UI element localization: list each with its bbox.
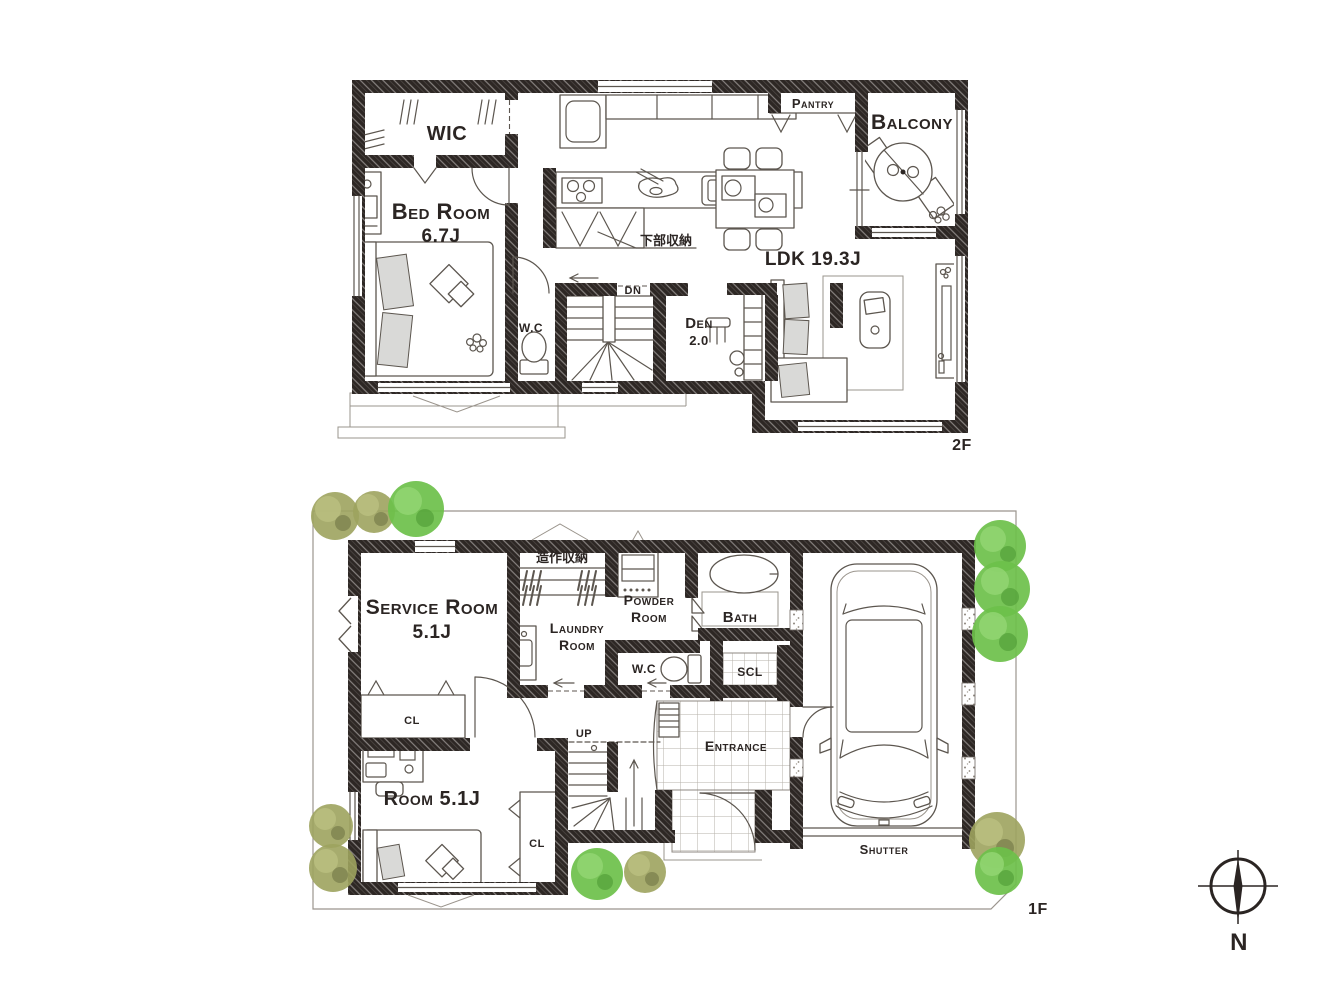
room-label-wic: WIC	[427, 123, 467, 145]
room-label-wc-1f: W.C	[632, 662, 656, 676]
shutter-label: Shutter	[860, 842, 909, 857]
double-bed	[362, 242, 493, 376]
room-size-service: 5.1J	[413, 622, 452, 643]
porch-tiles	[664, 790, 762, 860]
den-desk-shelf	[706, 294, 762, 380]
room-label-bath: Bath	[723, 609, 758, 626]
toilet-1f	[661, 655, 701, 683]
room-label-ldk: LDK 19.3J	[765, 249, 861, 270]
refrigerator	[560, 95, 606, 148]
tree-icon	[975, 847, 1023, 895]
compass-north-label: N	[1230, 929, 1248, 956]
room-label-entrance: Entrance	[705, 738, 767, 754]
room-label-powder-1: Powder	[624, 592, 675, 608]
tree-icon	[309, 804, 353, 848]
room-label-balcony: Balcony	[871, 111, 953, 134]
room-label-pantry: Pantry	[792, 96, 834, 111]
under-counter-storage	[556, 208, 644, 248]
kitchen-upper-cabinets	[606, 95, 796, 119]
stairs-label-up: UP	[576, 728, 592, 740]
doormat	[659, 703, 679, 737]
room-label-scl: SCL	[737, 665, 763, 679]
room-label-bedroom: Bed Room	[392, 199, 491, 224]
closet-label-service: CL	[404, 715, 420, 727]
floor-2f: WIC Bed Room 6.7J Pantry Balcony LDK 19.…	[338, 80, 972, 454]
room-label-wc-2f: W.C	[519, 321, 543, 335]
note-lower-storage: 下部収納	[640, 233, 692, 249]
floorplan-canvas: WIC Bed Room 6.7J Pantry Balcony LDK 19.…	[0, 0, 1333, 1000]
room-label-service: Service Room	[366, 596, 498, 619]
tree-icon	[388, 481, 444, 537]
floor-1f: Service Room 5.1J 造作収納 Laundry Room Powd…	[309, 481, 1048, 918]
laundry-hanger-rods	[520, 571, 605, 605]
coffee-table	[860, 292, 890, 348]
toilet-2f	[520, 332, 548, 374]
tree-icon	[311, 492, 359, 540]
tree-icon	[309, 844, 357, 892]
garage-shutter	[803, 828, 962, 836]
floor-label-1f: 1F	[1028, 901, 1048, 918]
room-size-bedroom: 6.7J	[422, 226, 461, 247]
compass-icon: N	[1198, 850, 1278, 956]
tree-icon	[624, 851, 666, 893]
tree-icon	[571, 848, 623, 900]
floor-label-2f: 2F	[952, 437, 972, 454]
note-builtin-storage: 造作収納	[536, 550, 588, 566]
room-size-den: 2.0	[689, 333, 709, 348]
service-closet	[361, 681, 465, 738]
tree-icon	[972, 606, 1028, 662]
room-label-den: Den	[685, 315, 713, 332]
closet-label-room: CL	[529, 838, 545, 850]
room-label-room51: Room 5.1J	[384, 788, 481, 810]
car	[820, 564, 948, 826]
room-label-powder-2: Room	[631, 609, 667, 625]
dining-table	[716, 148, 794, 250]
room-label-laundry-2: Room	[559, 637, 595, 653]
eave-outline-2f	[338, 393, 686, 438]
floorplan-page: WIC Bed Room 6.7J Pantry Balcony LDK 19.…	[0, 0, 1333, 1000]
room-label-laundry-1: Laundry	[550, 620, 604, 636]
single-bed	[363, 830, 481, 885]
stairs-label-dn: DN	[625, 285, 642, 297]
